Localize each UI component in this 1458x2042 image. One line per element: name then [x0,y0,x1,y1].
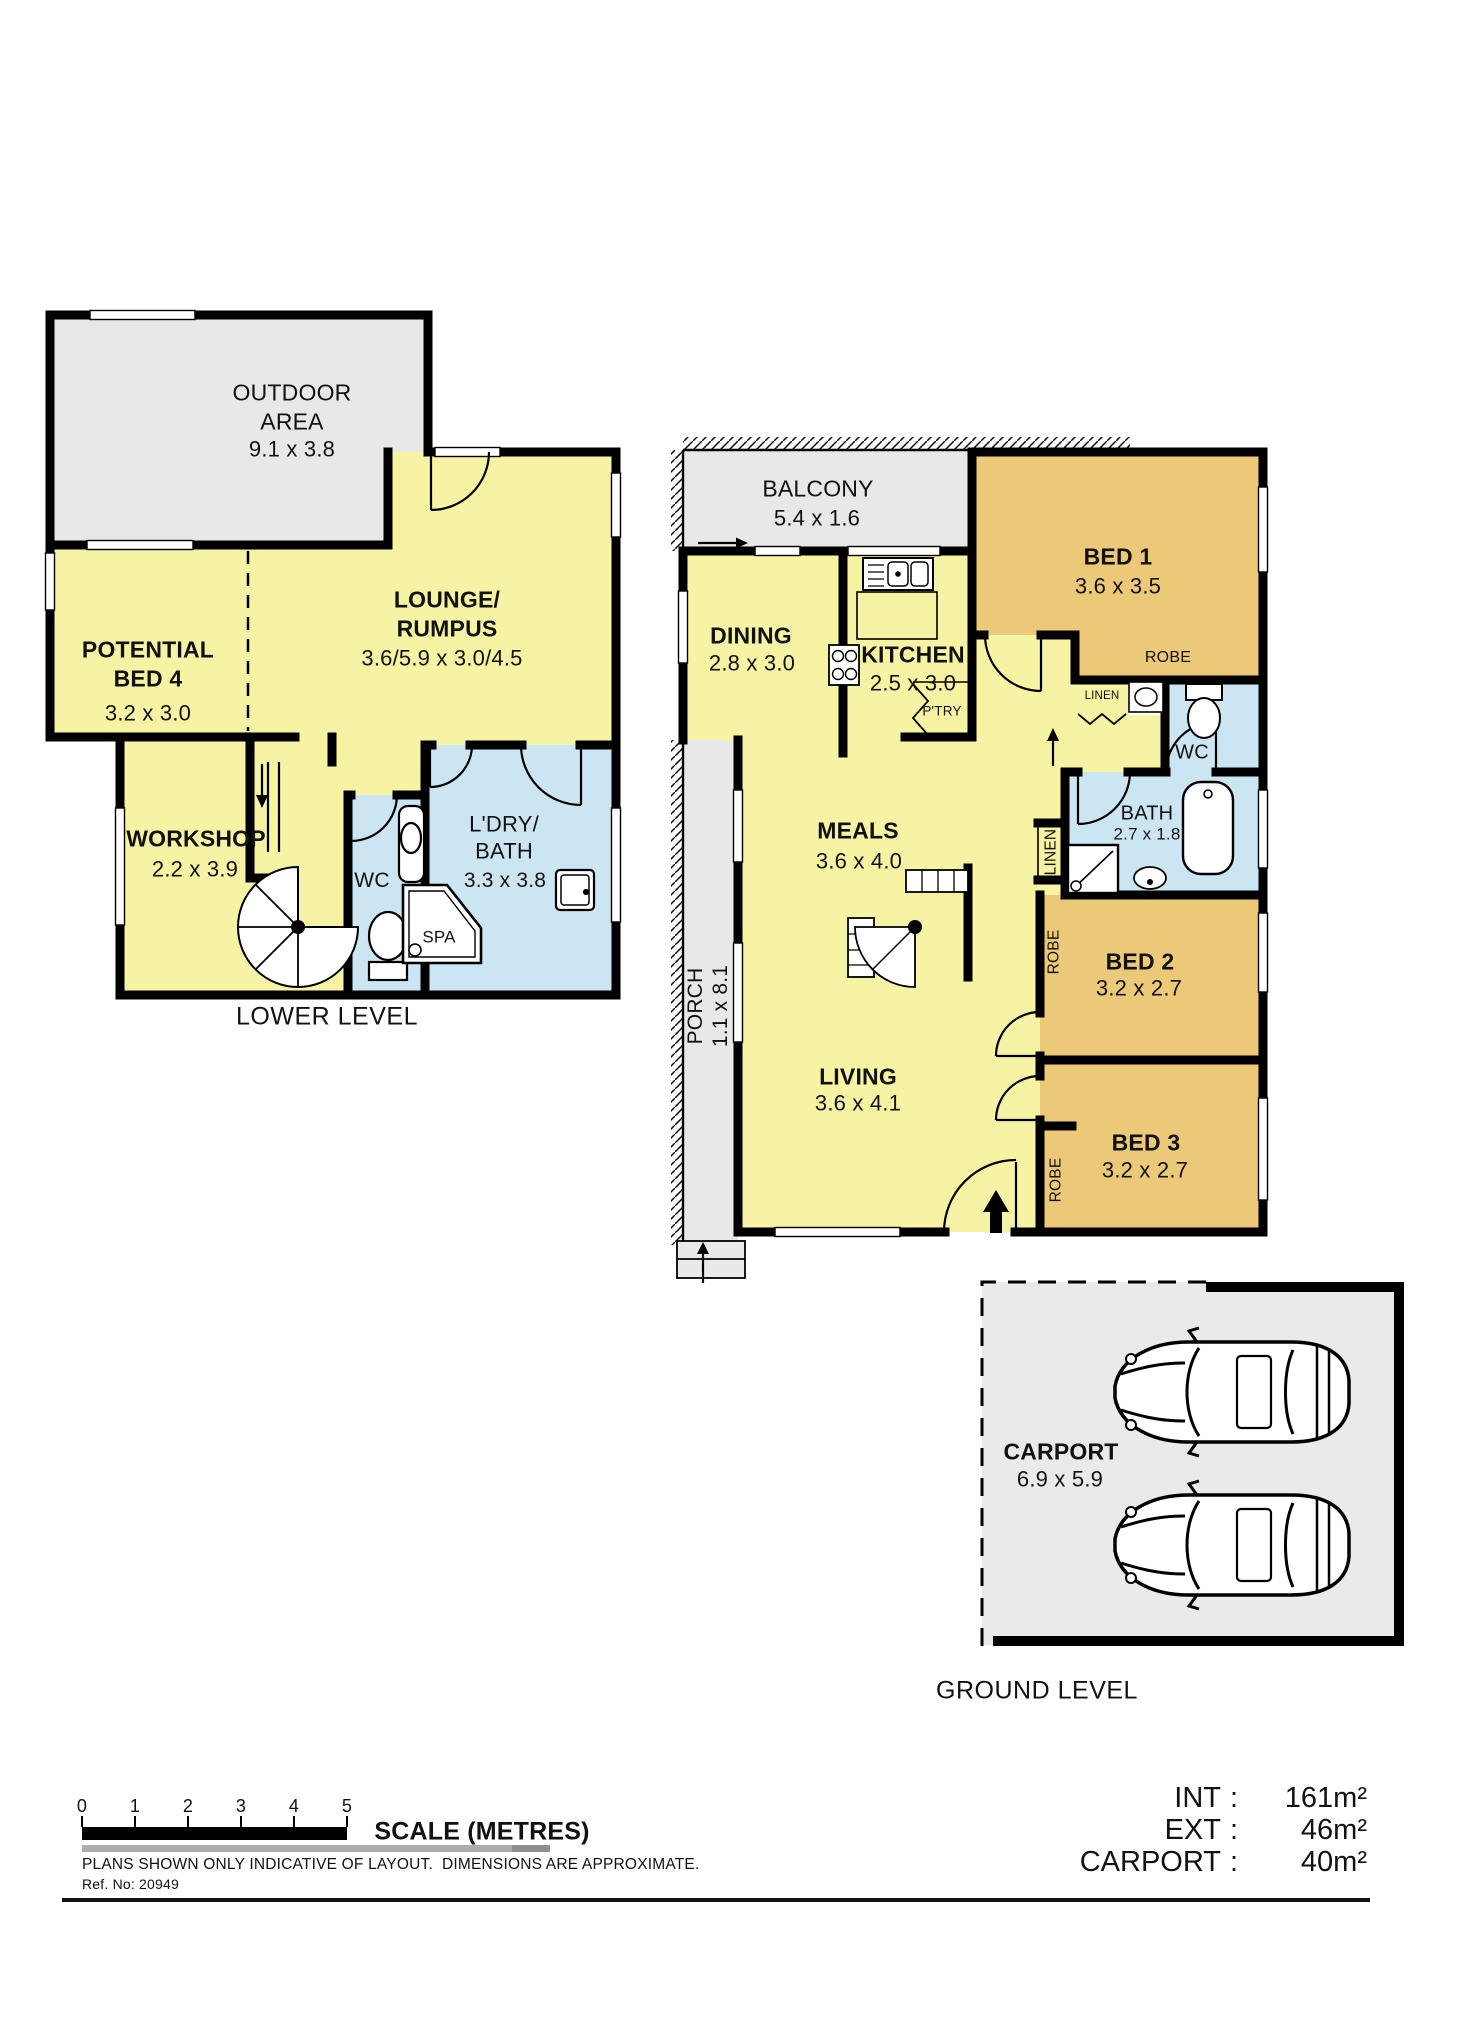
room-dims-carport: 6.9 x 5.9 [1017,1465,1103,1492]
scale-label: SCALE (METRES) [374,1817,589,1848]
room-dims-meals: 3.6 x 4.0 [816,847,902,874]
toilet-bowl-icon [1188,698,1220,738]
room-label-meals: MEALS [817,817,899,846]
area-value: 161m² [1247,1782,1367,1814]
room-dims-balcony: 5.4 x 1.6 [774,504,860,531]
room-label-wc-ground: WC [1175,741,1209,766]
room-dims-lounge: 3.6/5.9 x 3.0/4.5 [361,644,522,671]
area-row-ext: EXT : 46m² [1003,1814,1367,1846]
room-label-bed3: BED 3 [1112,1129,1181,1158]
area-row-carport: CARPORT : 40m² [1003,1846,1367,1878]
stair-post-icon [908,920,922,934]
room-dims-living: 3.6 x 4.1 [815,1089,901,1116]
floorplan-page: OUTDOOR AREA 9.1 x 3.8 POTENTIAL BED 4 3… [0,0,1458,2042]
room-dims-workshop: 2.2 x 3.9 [152,855,238,882]
scale-tick-1: 1 [130,1795,140,1817]
room-label-carport: CARPORT [1003,1438,1118,1467]
scale-tick-5: 5 [342,1795,352,1817]
area-colon: : [1221,1846,1247,1878]
caption-ground-level: GROUND LEVEL [936,1676,1138,1707]
area-value: 46m² [1247,1814,1367,1846]
room-label-pantry: P'TRY [922,704,961,721]
scale-tick-3: 3 [236,1795,246,1817]
room-dims-dining: 2.8 x 3.0 [709,649,795,676]
stair-post-icon [291,920,305,934]
room-label-living: LIVING [819,1063,897,1092]
disclaimer-text: PLANS SHOWN ONLY INDICATIVE OF LAYOUT. D… [82,1855,699,1874]
room-label-bed1: BED 1 [1084,543,1153,572]
room-label-linen1: LINEN [1085,689,1120,703]
room-label-balcony: BALCONY [762,475,873,504]
room-label-workshop: WORKSHOP [126,825,266,854]
toilet-tank-icon [369,962,407,980]
room-dims-bed4: 3.2 x 3.0 [105,699,191,726]
room-dims-laundry: 3.3 x 3.8 [464,868,546,894]
toilet-bowl-icon [369,912,407,960]
room-label-kitchen: KITCHEN [861,641,965,670]
room-label-wc-lower: WC [354,868,389,894]
scale-tick-2: 2 [183,1795,193,1817]
area-colon: : [1221,1814,1247,1846]
room-label-outdoor: OUTDOOR AREA [233,378,352,435]
footer-rule [62,1898,1370,1902]
area-summary: INT : 161m² EXT : 46m² CARPORT : 40m² [1003,1782,1367,1878]
room-dims-porch: 1.1 x 8.1 [708,965,734,1047]
caption-lower-level: LOWER LEVEL [236,1002,418,1033]
area-value: 40m² [1247,1846,1367,1878]
room-label-porch: PORCH [683,968,709,1045]
room-dims-bed3: 3.2 x 2.7 [1102,1156,1188,1183]
car-icon [1115,1481,1349,1609]
area-label: INT [1003,1782,1221,1814]
room-label-robe3: ROBE [1046,1158,1065,1203]
room-dims-bed2: 3.2 x 2.7 [1096,974,1182,1001]
room-label-bed2: BED 2 [1106,948,1175,977]
room-label-robe1: ROBE [1145,648,1191,668]
area-label: CARPORT [1003,1846,1221,1878]
area-row-int: INT : 161m² [1003,1782,1367,1814]
room-label-dining: DINING [710,622,792,651]
room-label-linen2: LINEN [1041,829,1060,876]
room-label-spa: SPA [422,926,455,947]
room-label-lounge: LOUNGE/ RUMPUS [394,585,500,642]
scale-tick-4: 4 [289,1795,299,1817]
area-colon: : [1221,1782,1247,1814]
car-icon [1115,1328,1349,1456]
ref-number: Ref. No: 20949 [82,1876,179,1893]
scale-tick-0: 0 [77,1795,87,1817]
porch-steps [677,1241,745,1283]
room-dims-kitchen: 2.5 x 3.0 [870,669,956,696]
room-label-robe2: ROBE [1044,930,1063,975]
room-label-bed4: POTENTIAL BED 4 [82,635,214,692]
area-label: EXT [1003,1814,1221,1846]
room-dims-outdoor: 9.1 x 3.8 [249,435,335,462]
basin-icon [1134,867,1166,889]
room-dims-bed1: 3.6 x 3.5 [1075,572,1161,599]
room-dims-bath: 2.7 x 1.8 [1113,823,1180,844]
room-label-laundry: L'DRY/ BATH [469,811,539,866]
